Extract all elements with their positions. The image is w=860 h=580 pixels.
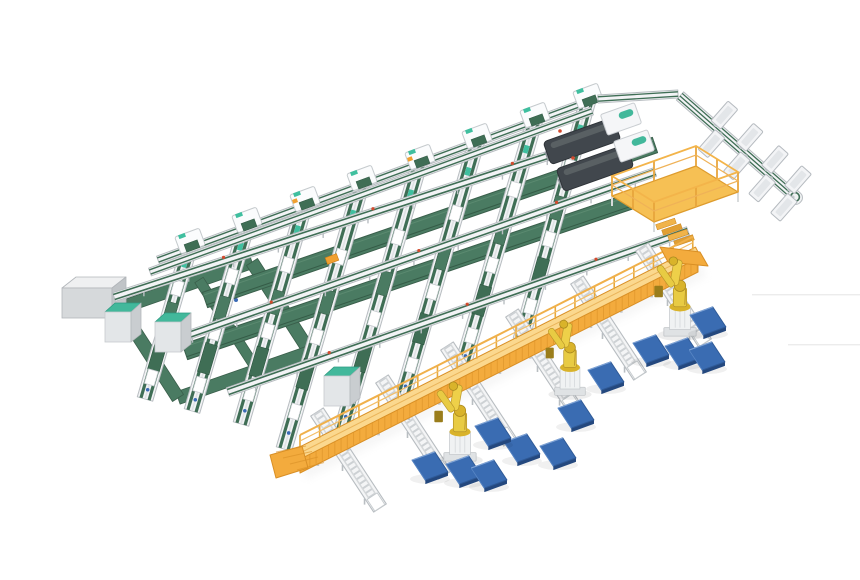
lane-sensor-dot xyxy=(194,398,198,402)
robot-gripper xyxy=(654,286,663,297)
cross-sensor-dot xyxy=(222,256,225,259)
lane-sensor-dot xyxy=(146,388,150,392)
tote-station xyxy=(749,174,776,202)
cross-sensor-dot xyxy=(371,207,374,210)
robot-elbow-joint xyxy=(560,320,568,328)
tote-station xyxy=(762,145,789,173)
scene-canvas xyxy=(0,0,860,580)
lane-sensor-dot xyxy=(287,431,291,435)
teal-cabinet-front xyxy=(324,376,350,406)
machine-head xyxy=(613,130,654,163)
machine-head xyxy=(600,103,641,136)
machine-red-dot xyxy=(558,129,562,133)
teal-cabinet xyxy=(105,303,141,342)
robot-gripper xyxy=(434,411,443,422)
cabinet-front xyxy=(62,288,112,318)
pallet-stack xyxy=(631,335,671,367)
teal-cabinet xyxy=(324,367,360,406)
robot-elbow-joint xyxy=(669,257,678,266)
tote-station xyxy=(736,123,763,151)
cross-sensor-dot xyxy=(270,301,273,304)
robot-elbow-joint xyxy=(449,382,458,391)
lane-sensor-dot xyxy=(243,409,247,413)
robot-gripper xyxy=(546,348,554,359)
ramp-body xyxy=(270,446,308,478)
pallet-stack xyxy=(586,362,626,394)
pallet-stack xyxy=(538,438,578,470)
cross-sensor-dot xyxy=(555,201,558,204)
teal-cabinet-front xyxy=(155,322,181,352)
tote-station xyxy=(785,166,812,194)
teal-cabinet-front xyxy=(105,312,131,342)
machine-red-dot xyxy=(571,156,575,160)
cross-sensor-dot xyxy=(466,303,469,306)
cross-sensor-dot xyxy=(511,162,514,165)
factory-line-render xyxy=(0,0,860,580)
tote-station xyxy=(770,193,797,221)
shadow-streak xyxy=(752,294,860,295)
cross-sensor-dot xyxy=(594,258,597,261)
tote-station xyxy=(698,130,725,158)
cross-sensor-dot xyxy=(328,351,331,354)
tote-station xyxy=(711,101,738,129)
shadow-streak xyxy=(788,344,860,345)
teal-cabinet xyxy=(155,313,191,352)
cross-sensor-dot xyxy=(417,249,420,252)
pallet-stack xyxy=(556,400,596,432)
